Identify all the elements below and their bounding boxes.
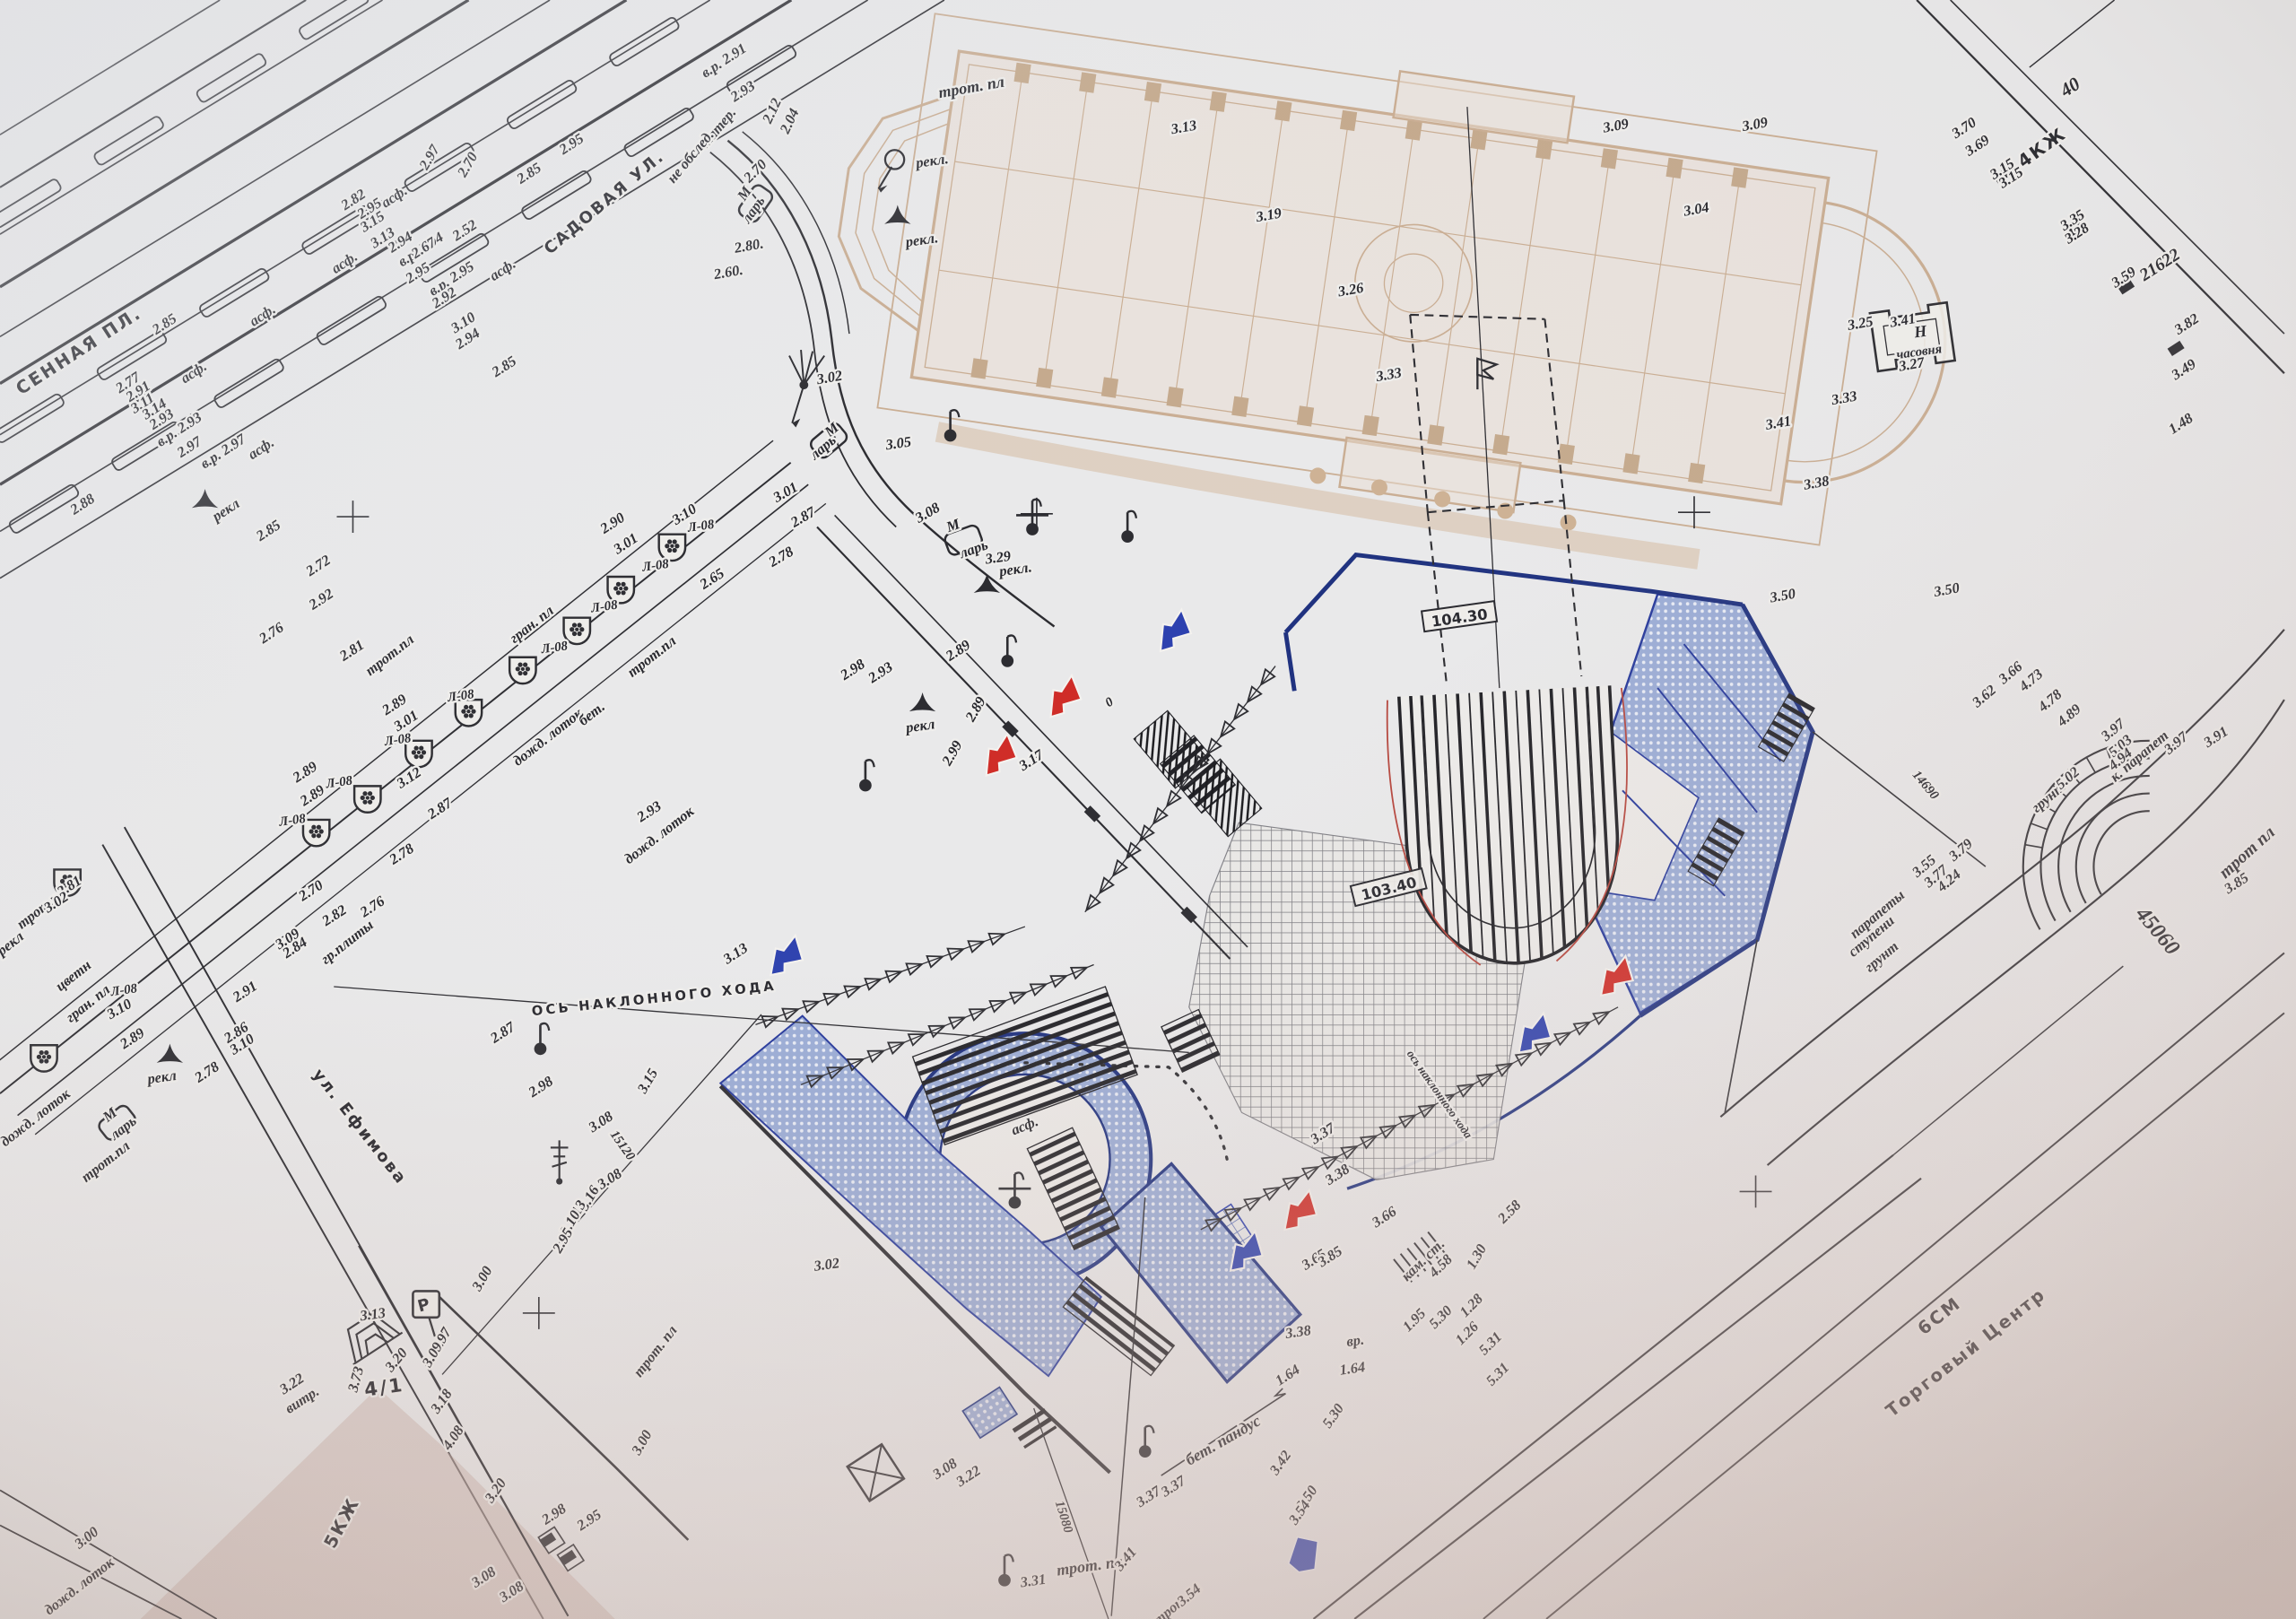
site-plan-drawing: САДОВАЯ УЛ.СЕННАЯ ПЛ.ул. Ефимова6СМТорго… [0, 0, 2296, 1619]
photo-lighting-overlay [0, 0, 2296, 1619]
site-plan-photo: САДОВАЯ УЛ.СЕННАЯ ПЛ.ул. Ефимова6СМТорго… [0, 0, 2296, 1619]
